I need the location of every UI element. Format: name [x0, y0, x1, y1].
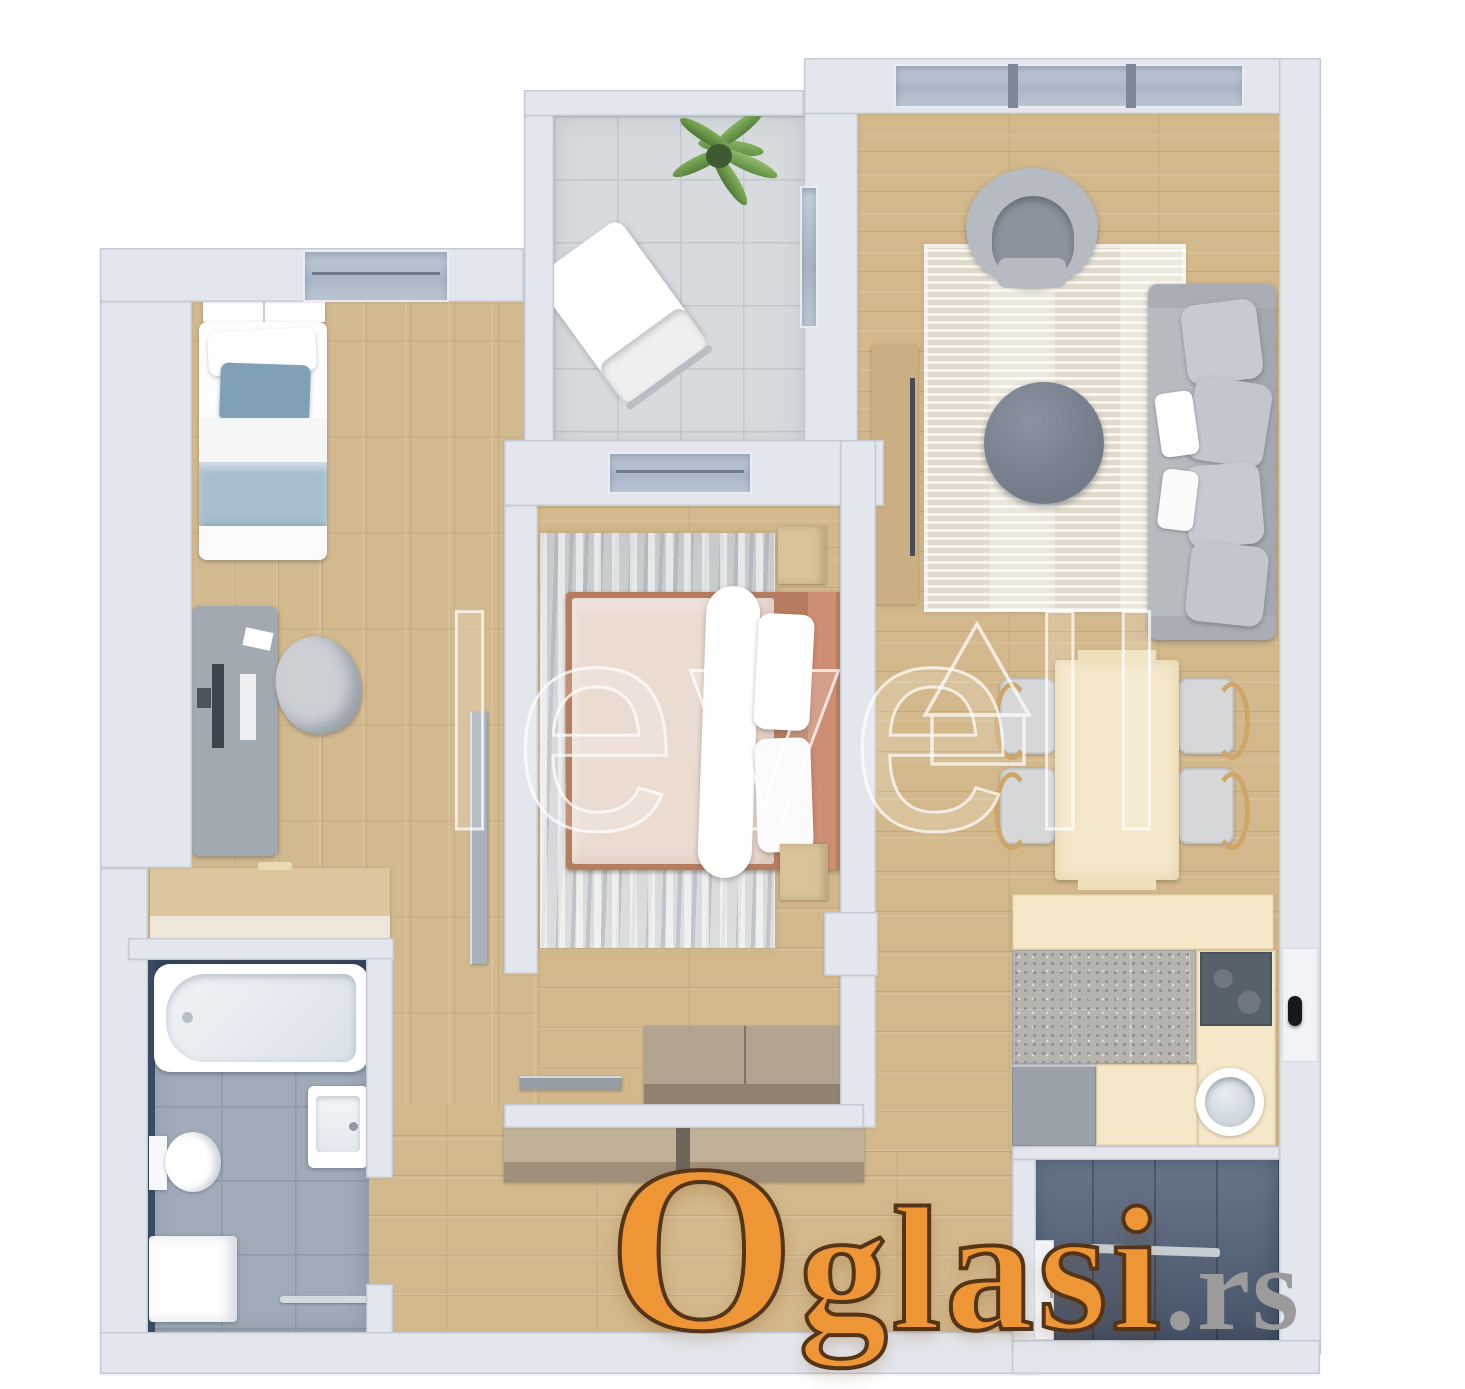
master-dresser-divider [744, 1026, 746, 1084]
master-balcony-window [608, 452, 752, 494]
bathtub-basin [166, 974, 356, 1062]
master-balcony-window-rod [616, 470, 744, 473]
sofa-cushion-4 [1184, 540, 1270, 628]
kitchen-counter-top-band [1012, 894, 1274, 950]
wall-bathroom-right-stub [366, 1284, 393, 1336]
master-wall-shelf [520, 1076, 622, 1090]
sofa-pillow-white-2 [1156, 468, 1199, 532]
single-bed-pillow-blue [219, 362, 311, 423]
headboard-divider [263, 302, 265, 322]
single-bed-foot [199, 526, 327, 560]
living-room-window [894, 64, 1244, 108]
tv-screen [910, 378, 915, 556]
bathtub-drain [182, 1012, 193, 1023]
brand-triangle-logo-icon [922, 618, 1034, 770]
toilet-bowl [165, 1132, 221, 1192]
living-balcony-window [800, 186, 818, 328]
wall-pillar [824, 912, 878, 976]
desk-pc-tower [197, 688, 211, 708]
dining-chair-3-arm [1214, 682, 1250, 760]
classifieds-logo-name: Oglasi [608, 1128, 1165, 1368]
desk-monitor [212, 664, 224, 748]
sofa-cushion-2 [1184, 374, 1274, 469]
classifieds-logo: Oglasi .rs [608, 1128, 1465, 1358]
bedroom1-window [303, 250, 449, 302]
living-window-mullion-2 [1126, 64, 1136, 108]
single-bed-duvet [199, 418, 327, 466]
wall-bathroom-top [128, 938, 394, 960]
desk-keyboard [240, 674, 256, 740]
armchair-front-gap [998, 258, 1066, 288]
kitchen-cooktop [1200, 952, 1272, 1026]
washing-machine [149, 1236, 237, 1322]
wall-left-upper [100, 248, 192, 868]
kitchen-sink-bowl [1205, 1077, 1255, 1127]
classifieds-logo-tld: .rs [1165, 1229, 1301, 1349]
master-dresser-front [644, 1084, 846, 1104]
living-window-mullion-1 [1008, 64, 1018, 108]
apartment-floor-plan: levell Oglasi .rs [0, 0, 1465, 1389]
kitchen-worktop-stone [1012, 950, 1196, 1064]
bedroom1-window-rod [312, 272, 440, 275]
wardrobe-front [150, 916, 390, 940]
wall-balcony-left [524, 90, 554, 446]
single-bed-blanket-blue [199, 462, 327, 528]
coffee-table [984, 382, 1104, 504]
entrance-door-handle [1288, 996, 1302, 1026]
dining-chair-4-arm [1214, 772, 1250, 850]
wardrobe-handle [258, 862, 292, 870]
bathroom-sink-faucet [349, 1122, 358, 1131]
plant-icon [660, 104, 790, 234]
sofa-cushion-1 [1179, 298, 1264, 387]
wardrobe-top-face [150, 868, 390, 916]
wall-bathroom-right [366, 958, 393, 1178]
wall-balcony-top [524, 90, 804, 116]
